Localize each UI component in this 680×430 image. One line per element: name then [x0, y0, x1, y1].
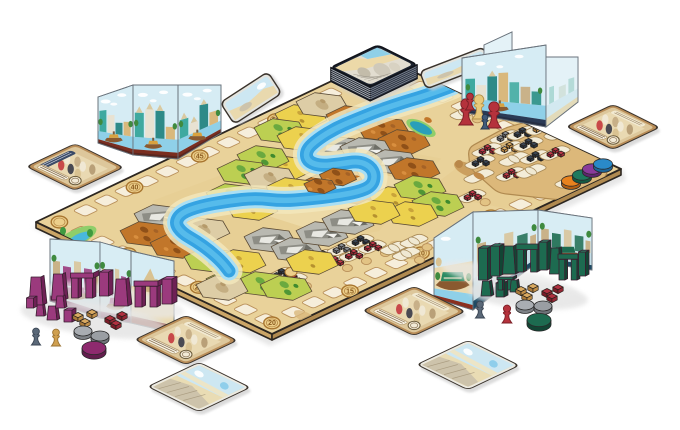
svg-text:15: 15 — [346, 288, 354, 295]
svg-text:20: 20 — [268, 320, 276, 327]
svg-text:40: 40 — [131, 184, 139, 191]
svg-text:45: 45 — [196, 153, 204, 160]
